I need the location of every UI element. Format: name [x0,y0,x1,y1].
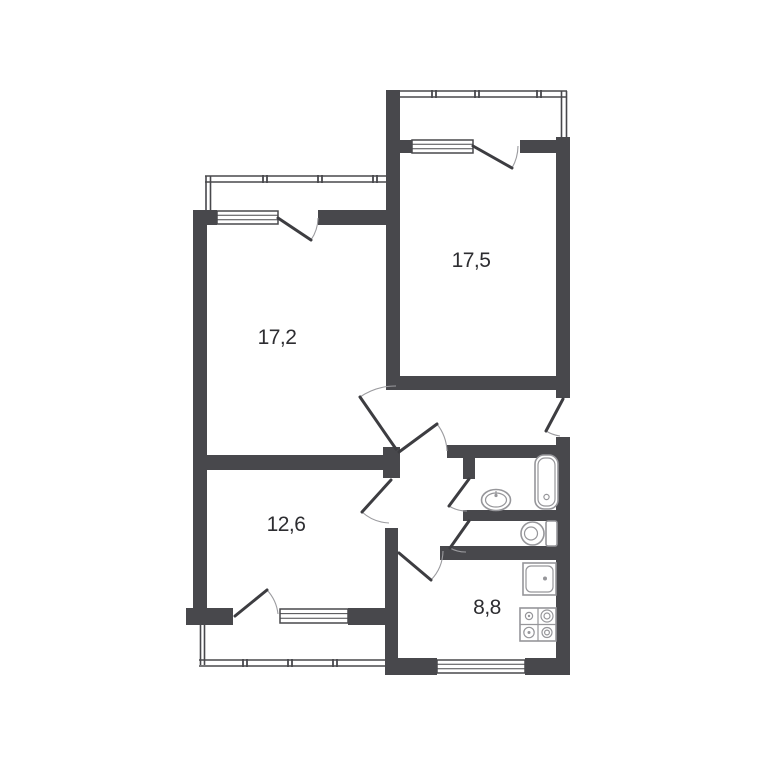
door-kitchen [399,551,443,580]
wall-17-5-window-jamb-left [400,140,412,153]
wall-divider-17-2-12-6 [200,455,385,470]
area-label-kitchen: 8,8 [473,596,501,619]
stove-icon [520,608,556,641]
wall-left [193,210,207,625]
walls [186,90,570,675]
area-label-room-top-right: 17,5 [452,249,491,272]
wall-shared-center [386,137,400,387]
wall-bathroom-door-jamb [463,458,475,479]
wall-17-5-bottom [386,376,570,390]
wall-17-2-window-jamb-left [193,210,217,225]
balcony-top-right-rail [386,90,567,140]
floor-plan-drawing: 17,5 17,2 12,6 8,8 [0,0,768,768]
toilet-icon [521,521,557,546]
wall-12-6-bottom-left [186,608,233,625]
bathtub-icon [535,455,558,509]
balcony-door-17-2 [278,218,318,240]
window-kitchen [437,660,525,673]
window-17-2 [217,211,278,224]
wall-divider-bath-toilet [463,510,558,521]
wash-basin-icon [482,490,511,511]
window-17-5 [412,140,473,153]
kitchen-sink-icon [523,563,556,595]
door-hall-corridor [399,424,447,452]
wall-12-6-bottom-right [348,608,398,625]
wall-kitchen-bottom-left [385,658,437,675]
wall-balcony-17-5-left [386,90,400,153]
door-bathroom [449,479,469,511]
balcony-door-12-6 [235,590,278,616]
area-label-room-top-left: 17,2 [258,326,297,349]
door-room-17-2 [360,386,396,449]
entrance-door [546,399,563,436]
area-label-room-bottom-left: 12,6 [267,513,306,536]
wall-kitchen-top [440,546,570,560]
door-room-12-6 [362,480,391,523]
window-12-6 [280,609,348,623]
wall-hall-pillar [383,447,400,478]
balcony-top-left-rail [205,175,398,210]
balcony-bottom-left-rail [199,625,390,667]
wall-right-upper [556,137,570,398]
balcony-door-17-5 [473,146,518,168]
floor-plan-page: 17,5 17,2 12,6 8,8 [0,0,768,768]
wall-12-6-right-kitchen-left [385,528,398,675]
wall-kitchen-bottom-right [525,658,570,675]
